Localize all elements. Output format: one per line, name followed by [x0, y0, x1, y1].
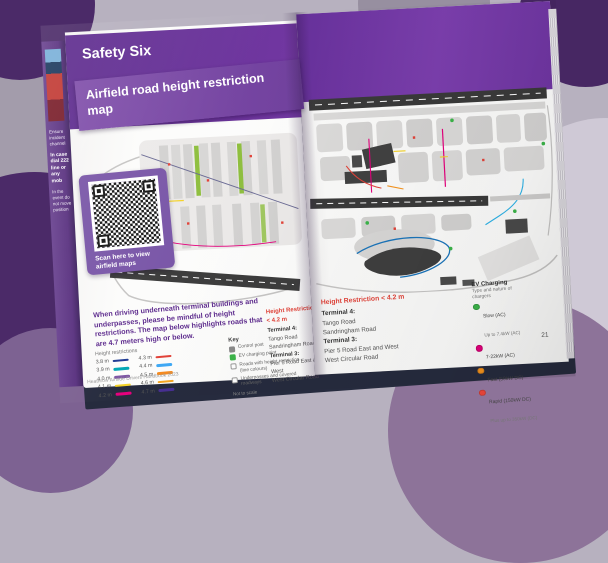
- page-title: Safety Six: [82, 43, 152, 63]
- legend-entry: 4.4 m: [139, 361, 172, 370]
- legend-entry: 4.2 m: [98, 390, 131, 399]
- legend-entry: 4.7 m: [141, 386, 174, 395]
- legend-entry: 3.9 m: [96, 365, 129, 374]
- ev-charging-icon: [230, 355, 237, 362]
- ev-charging-subtitle: Type and nature of chargers: [472, 286, 519, 301]
- legend-swatch-icon: [156, 363, 172, 367]
- legend-swatch-icon: [158, 388, 174, 392]
- height-restriction-legend: Height restrictions 3.8 m 3.9 m 4.0 m 4.…: [95, 341, 225, 399]
- legend-swatch-icon: [115, 383, 131, 387]
- legend-swatch-icon: [155, 355, 171, 359]
- ev-charging-panel: EV Charging Type and nature of chargers …: [471, 277, 563, 431]
- legend-swatch-icon: [113, 367, 129, 371]
- ev-medium-dot-icon: [476, 345, 483, 352]
- previous-page-text: In the event do not move position: [52, 188, 73, 212]
- ev-rapid-dot-icon: [479, 389, 486, 396]
- page-number: 21: [541, 332, 549, 339]
- ev-slow-dot-icon: [473, 304, 480, 311]
- open-handbook: Ensure incident channel In case dial 222…: [40, 0, 575, 403]
- qr-caption: Scan here to view airfield maps: [95, 249, 166, 272]
- legend-swatch-icon: [113, 358, 129, 362]
- ev-charging-entry: Fast (50kW DC): [477, 362, 560, 387]
- restriction-list: Height Restriction < 4.2 m Terminal 4: T…: [321, 291, 435, 366]
- legend-swatch-icon: [116, 392, 132, 396]
- restricted-road-icon: [230, 363, 237, 370]
- legend-entry: 3.8 m: [95, 357, 128, 366]
- left-page: Safety Six Airfield road height restrict…: [65, 20, 315, 388]
- control-post-icon: [229, 346, 236, 353]
- legend-swatch-icon: [158, 380, 174, 384]
- legend-entry: 4.3 m: [138, 353, 171, 362]
- right-page: Height Restriction < 4.2 m Terminal 4: T…: [296, 1, 569, 375]
- previous-page-text: In case dial 222 line or any mob: [50, 151, 72, 185]
- ev-charging-entry: Rapid (150kW DC) Plus up to 350kW (DC): [479, 384, 563, 428]
- ev-charging-entry: 7-22kW (AC): [476, 340, 559, 365]
- qr-panel: Scan here to view airfield maps: [78, 168, 175, 276]
- previous-page-photo-sliver: [45, 49, 65, 122]
- underpass-icon: [232, 377, 239, 384]
- ev-fast-dot-icon: [477, 367, 484, 374]
- airfield-map-detail: [303, 85, 563, 298]
- qr-code-icon: [88, 175, 164, 251]
- previous-page-text: Ensure incident channel: [49, 128, 70, 147]
